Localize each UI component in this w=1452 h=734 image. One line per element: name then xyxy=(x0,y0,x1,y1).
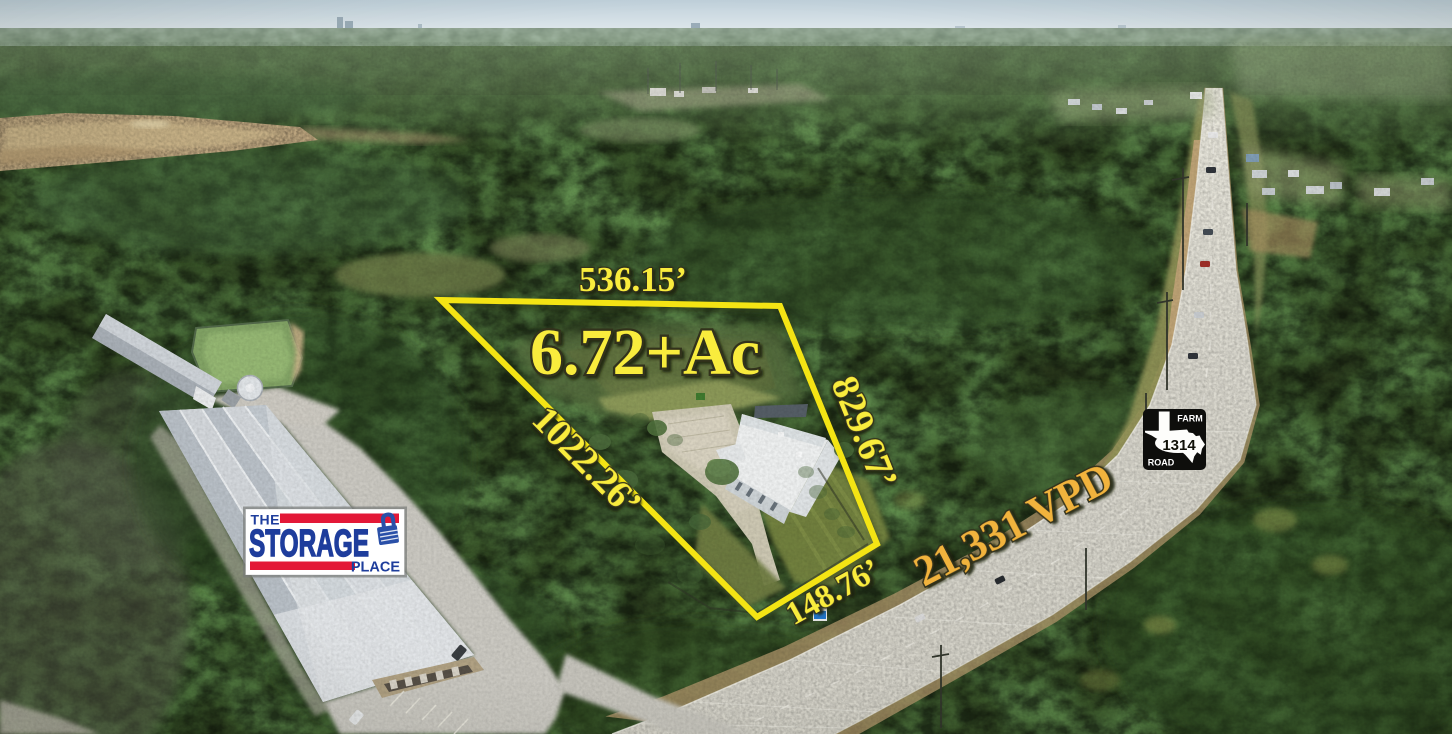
svg-text:PLACE: PLACE xyxy=(351,560,400,576)
svg-text:1314: 1314 xyxy=(1162,437,1196,454)
svg-text:536.15’: 536.15’ xyxy=(579,260,687,299)
svg-text:ROAD: ROAD xyxy=(1148,458,1175,468)
svg-text:6.72+Ac: 6.72+Ac xyxy=(530,316,760,389)
svg-text:FARM: FARM xyxy=(1177,414,1203,424)
